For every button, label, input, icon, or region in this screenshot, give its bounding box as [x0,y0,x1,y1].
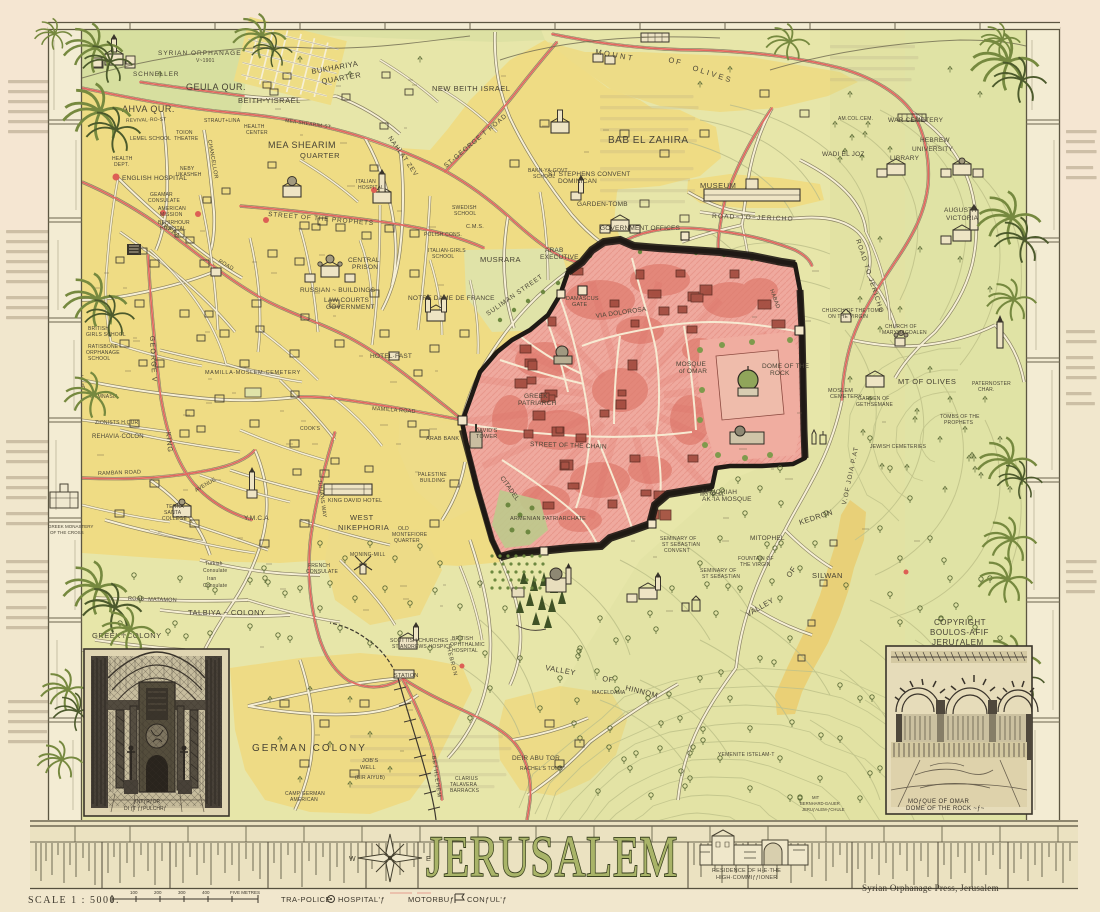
svg-text:NIKEPHORIA: NIKEPHORIA [338,523,389,532]
svg-text:AMERICAN: AMERICAN [290,797,318,803]
svg-text:CENTER: CENTER [246,130,268,136]
svg-text:DEIR ABU TOR: DEIR ABU TOR [512,755,560,762]
svg-text:HEBREW: HEBREW [920,137,950,144]
svg-text:CONSULATE: CONSULATE [148,198,180,204]
svg-text:GOVERNMENT: GOVERNMENT [326,304,375,311]
svg-text:MACELDAMA: MACELDAMA [592,690,626,696]
svg-text:POLISH CONS.: POLISH CONS. [424,232,462,238]
svg-text:COOK'S: COOK'S [300,426,321,432]
svg-text:UNIVERSITY: UNIVERSITY [912,146,953,153]
svg-text:W: W [349,856,356,863]
svg-text:ARAB BANK: ARAB BANK [426,436,459,442]
svg-text:LAW COURTS: LAW COURTS [324,297,369,304]
svg-text:GOVERNMENT OFFICES: GOVERNMENT OFFICES [600,225,681,232]
svg-text:COLLEGE: COLLEGE [162,516,187,522]
svg-text:MIT: MIT [812,795,820,800]
svg-text:UKASHEH: UKASHEH [176,172,202,178]
svg-text:JOB'S: JOB'S [362,758,379,764]
svg-text:SCALE 1 : 5000.: SCALE 1 : 5000. [28,895,120,906]
svg-text:ARAB: ARAB [545,247,564,254]
svg-text:QUARTER: QUARTER [394,538,420,544]
svg-text:RESIDENCE OF H·E·THE: RESIDENCE OF H·E·THE [712,868,781,874]
svg-text:CENTRAL: CENTRAL [348,257,380,264]
svg-text:Syrian Orphanage Press, Jerusa: Syrian Orphanage Press, Jerusalem [862,883,999,893]
svg-text:GATE: GATE [572,302,587,308]
svg-text:NOTRE DAME DE FRANCE: NOTRE DAME DE FRANCE [408,295,495,302]
svg-text:SCHOOL: SCHOOL [432,254,454,260]
svg-text:HIGH·COMMIƒƒIONER: HIGH·COMMIƒƒIONER [716,875,777,881]
svg-text:TOWER: TOWER [476,434,497,440]
svg-text:HOSPITAL'ƒ: HOSPITAL'ƒ [338,895,385,904]
svg-text:OF: OF [602,674,615,685]
svg-text:CHAR.: CHAR. [978,387,995,393]
svg-text:GARDEN-TOMB: GARDEN-TOMB [577,201,628,208]
svg-text:MARYMAGDALEN: MARYMAGDALEN [882,330,927,336]
svg-text:MISSION: MISSION [160,212,183,218]
svg-text:BOULOS-AFIF: BOULOS-AFIF [930,628,989,637]
svg-text:Turkish: Turkish [205,561,223,567]
svg-text:JERUƒALEM-ƒCHULE: JERUƒALEM-ƒCHULE [802,807,845,812]
svg-text:WAR CEMETERY: WAR CEMETERY [888,117,944,124]
svg-text:(BIR AIYUB): (BIR AIYUB) [355,775,385,781]
svg-text:QUARTER: QUARTER [300,151,340,160]
svg-text:STRAUT+LINA: STRAUT+LINA [204,118,241,124]
svg-text:WEST: WEST [350,513,374,522]
svg-text:PRISON: PRISON [352,264,378,271]
svg-text:MUSRARA: MUSRARA [480,255,521,264]
svg-text:RACHEL'S TOMB: RACHEL'S TOMB [520,766,563,772]
svg-text:100: 100 [130,890,138,895]
svg-text:Y.M.C.A: Y.M.C.A [244,515,269,522]
svg-text:ON THE VIRGIN: ON THE VIRGIN [828,314,868,320]
svg-text:CONVENT: CONVENT [664,548,690,554]
svg-text:OF THE CROSS: OF THE CROSS [50,530,84,535]
svg-text:300: 300 [178,890,186,895]
svg-text:RUSSIAN ~ BUILDINGS: RUSSIAN ~ BUILDINGS [300,287,376,294]
svg-text:HOSPITAL: HOSPITAL [452,648,478,654]
svg-text:NEW BEITH ISRAEL: NEW BEITH ISRAEL [432,84,510,93]
svg-text:WELL: WELL [360,765,376,771]
svg-text:SCHOOL: SCHOOL [533,174,555,180]
svg-text:MITOPHEL: MITOPHEL [750,535,785,542]
svg-text:MOTELEL: MOTELEL [700,492,725,498]
svg-text:DOME OF THE ROCK ~ƒ~: DOME OF THE ROCK ~ƒ~ [906,806,985,812]
svg-text:YEMENITE ISTELAM-T: YEMENITE ISTELAM-T [718,752,775,758]
svg-text:ZIONISTS H.QUR.: ZIONISTS H.QUR. [95,420,140,426]
svg-text:GREEK MONASTERY: GREEK MONASTERY [48,524,93,529]
svg-text:BAB EL ZAHIRA: BAB EL ZAHIRA [608,135,689,146]
svg-text:of OMAR: of OMAR [679,368,707,375]
svg-text:LEMEL SCHOOL: LEMEL SCHOOL [130,136,171,142]
svg-text:MAMILLA-MOSLEM-CEMETERY: MAMILLA-MOSLEM-CEMETERY [205,370,301,376]
svg-text:STATION: STATION [394,673,418,679]
svg-text:ST SEBASTIAN: ST SEBASTIAN [702,574,740,580]
svg-text:BEITH-YISRAËL: BEITH-YISRAËL [238,96,301,105]
svg-text:SCHOOL: SCHOOL [454,211,476,217]
svg-text:GETHSEMANE: GETHSEMANE [856,402,893,408]
svg-text:C.M.S.: C.M.S. [466,224,484,230]
svg-text:EXECUTIVE: EXECUTIVE [540,254,579,261]
svg-text:CONƒUL'ƒ: CONƒUL'ƒ [467,895,507,904]
svg-text:MUSEUM: MUSEUM [700,181,736,190]
svg-text:SYRIAN ORPHANAGE: SYRIAN ORPHANAGE [158,50,242,57]
svg-text:Iran: Iran [207,576,216,582]
svg-text:VICTORIA: VICTORIA [946,215,979,222]
svg-text:AHVA QUR.: AHVA QUR. [122,104,175,114]
svg-text:FIVE METRES: FIVE METRES [230,890,260,895]
svg-text:BARRACKS: BARRACKS [450,788,480,794]
svg-text:200: 200 [154,890,162,895]
svg-text:SCHNELLER: SCHNELLER [133,71,179,78]
svg-text:THEATRE: THEATRE [174,136,199,142]
svg-text:ST ANDREWS HOSPICE: ST ANDREWS HOSPICE [392,644,453,650]
svg-text:COPYRIGHT: COPYRIGHT [934,618,986,627]
svg-text:WADI EL JOZ: WADI EL JOZ [822,151,865,158]
svg-text:JEWISH CEMETERIES: JEWISH CEMETERIES [870,444,927,450]
svg-text:HOSPITAL: HOSPITAL [358,185,384,191]
svg-text:CONSULATE: CONSULATE [306,569,338,575]
svg-text:JERUSALEM: JERUSALEM [426,824,678,889]
svg-text:GREEK: GREEK [524,393,548,400]
svg-text:TALBIYA ~ COLONY: TALBIYA ~ COLONY [188,608,266,617]
svg-text:AM.COL.CEM.: AM.COL.CEM. [838,116,873,122]
svg-text:PATRIARCH: PATRIARCH [518,400,557,407]
svg-text:MONING-MILL: MONING-MILL [350,552,386,558]
svg-text:AUGUSTA: AUGUSTA [944,207,977,214]
svg-text:ARMENIAN PATRIARCHATE: ARMENIAN PATRIARCHATE [510,516,586,522]
svg-text:400: 400 [202,890,210,895]
svg-text:Consulate: Consulate [203,568,227,574]
svg-text:MEA SHEARIM: MEA SHEARIM [268,140,336,150]
svg-text:BERNHARD-GAUER: BERNHARD-GAUER [800,801,840,806]
svg-text:GEULA QUR.: GEULA QUR. [186,82,246,92]
svg-text:MOTORBUƒ: MOTORBUƒ [408,895,454,904]
svg-text:DEPT.: DEPT. [114,162,129,168]
svg-text:MOSQUE: MOSQUE [676,361,707,368]
svg-text:THE VIRGIN: THE VIRGIN [740,562,771,568]
svg-text:LIBRARY: LIBRARY [890,155,920,162]
svg-text:BUILDING: BUILDING [420,478,445,484]
svg-text:Consulate: Consulate [203,583,227,589]
svg-text:REHAVIA·COLON: REHAVIA·COLON [92,434,144,440]
svg-text:GIRLS SCHOOL: GIRLS SCHOOL [86,332,126,338]
svg-text:TRA-POLICE: TRA-POLICE [281,895,331,904]
svg-text:KING DAVID HOTEL: KING DAVID HOTEL [328,498,382,504]
svg-text:MOƒQUE OF OMAR: MOƒQUE OF OMAR [908,799,970,805]
svg-text:DOMINICAN: DOMINICAN [558,178,597,185]
svg-text:SILWAN: SILWAN [812,571,843,580]
svg-text:ROCK: ROCK [770,370,790,377]
svg-text:GERMAN COLONY: GERMAN COLONY [252,743,367,754]
svg-text:HOTEL·FAST: HOTEL·FAST [370,353,412,360]
svg-text:SCHOOL: SCHOOL [88,356,110,362]
svg-text:V~1901: V~1901 [196,58,215,64]
svg-text:MT OF OLIVES: MT OF OLIVES [898,377,956,386]
svg-text:DOME OF THE: DOME OF THE [762,363,810,370]
svg-text:PROPHETS: PROPHETS [944,420,974,426]
